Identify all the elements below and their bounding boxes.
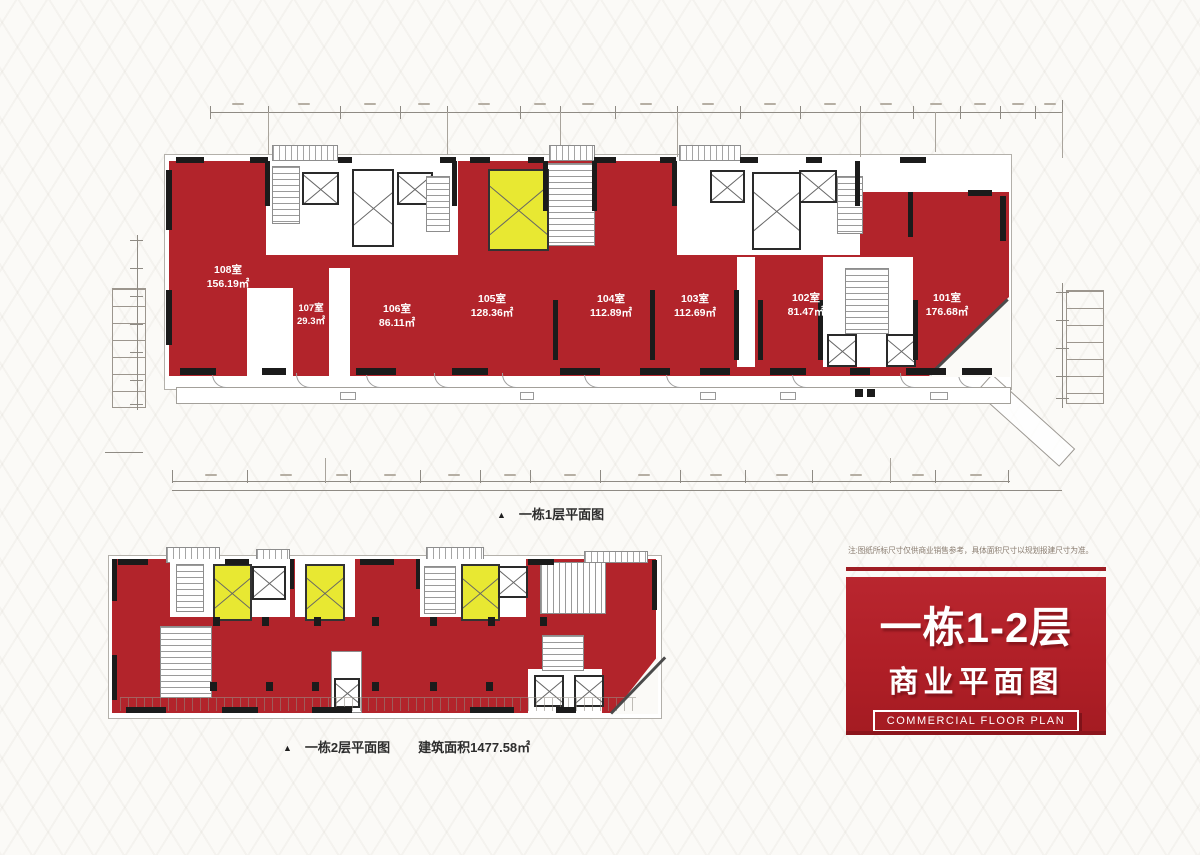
- unit-label-103: 103室112.69㎡: [674, 292, 716, 320]
- dimension-tick: [130, 380, 143, 381]
- wall-segment: [528, 157, 544, 163]
- elevator-xbox: [827, 334, 857, 367]
- wall-segment: [855, 389, 863, 397]
- dimension-extension-line: [677, 112, 678, 158]
- wall-segment: [650, 290, 655, 360]
- dimension-number-mark: [776, 474, 788, 476]
- plan1-left-parking-stalls: [112, 288, 146, 408]
- structural-column: [314, 617, 321, 626]
- dimension-number-mark: [824, 103, 836, 105]
- elevator-xbox: [302, 172, 339, 205]
- dimension-tick: [960, 106, 961, 119]
- dimension-tick: [1056, 348, 1069, 349]
- dimension-number-mark: [364, 103, 376, 105]
- dimension-number-mark: [1012, 103, 1024, 105]
- plan1-bottom-dimension-line-2: [172, 490, 1062, 491]
- dimension-tick: [745, 470, 746, 483]
- unit-label-105: 105室128.36㎡: [471, 292, 514, 320]
- dimension-number-mark: [336, 474, 348, 476]
- dimension-extension-line: [935, 112, 936, 152]
- wall-segment: [416, 559, 420, 589]
- wall-segment: [734, 290, 739, 360]
- plan1-left-dimension-line: [137, 235, 138, 410]
- wall-segment: [180, 368, 216, 375]
- plan1-right-parking-stalls: [1066, 290, 1104, 404]
- banner-caption-en: COMMERCIAL FLOOR PLAN: [873, 710, 1079, 732]
- structural-column: [430, 617, 437, 626]
- canopy-mark: [780, 392, 796, 400]
- dimension-number-mark: [850, 474, 862, 476]
- dimension-tick: [130, 240, 143, 241]
- elevator-xbox: [252, 566, 286, 600]
- dimension-tick: [935, 470, 936, 483]
- title-banner: 一栋1-2层 商业平面图 COMMERCIAL FLOOR PLAN: [846, 577, 1106, 735]
- roof-stair-bump: [549, 145, 595, 161]
- structural-column: [486, 682, 493, 691]
- plan1-caption: ▲一栋1层平面图: [497, 504, 604, 523]
- wall-segment: [470, 157, 490, 163]
- dimension-number-mark: [710, 474, 722, 476]
- wall-segment: [112, 559, 117, 601]
- wall-segment: [112, 655, 117, 700]
- dimension-number-mark: [298, 103, 310, 105]
- wall-segment: [452, 161, 457, 206]
- wall-segment: [908, 192, 913, 237]
- dimension-tick: [1056, 292, 1069, 293]
- dimension-tick: [680, 470, 681, 483]
- wall-segment: [1000, 196, 1006, 241]
- dimension-extension-line: [325, 458, 326, 482]
- wall-segment: [265, 161, 270, 206]
- canopy-mark: [520, 392, 534, 400]
- dimension-tick: [530, 470, 531, 483]
- roof-stair-bump: [679, 145, 741, 161]
- highlight-shaft-plan2: [305, 564, 345, 621]
- dimension-tick: [420, 470, 421, 483]
- dimension-number-mark: [974, 103, 986, 105]
- dimension-number-mark: [478, 103, 490, 105]
- unit-label-101: 101室176.68㎡: [926, 291, 969, 319]
- dimension-tick: [350, 470, 351, 483]
- triangle-marker-icon: ▲: [497, 510, 506, 520]
- elevator-xbox: [799, 170, 837, 203]
- wall-segment: [338, 157, 352, 163]
- unit-label-104: 104室112.89㎡: [590, 292, 632, 320]
- structural-column: [372, 682, 379, 691]
- corridor-103-102: [737, 257, 755, 367]
- wall-segment: [906, 368, 946, 375]
- dimension-number-mark: [638, 474, 650, 476]
- wall-segment: [126, 707, 166, 713]
- wall-segment: [290, 559, 294, 589]
- wall-segment: [560, 368, 600, 375]
- corridor-beside-107: [329, 268, 350, 376]
- dimension-extension-line: [860, 112, 861, 158]
- wall-segment: [543, 161, 548, 211]
- plan1-bottom-dimension-line: [172, 481, 1010, 482]
- wall-segment: [176, 157, 204, 163]
- stair-core: [426, 176, 450, 232]
- dimension-tick: [130, 324, 143, 325]
- dimension-tick: [130, 404, 143, 405]
- wall-segment: [700, 368, 730, 375]
- wall-segment: [262, 368, 286, 375]
- elevator-xbox: [886, 334, 916, 367]
- dimension-number-mark: [448, 474, 460, 476]
- wall-segment: [166, 170, 172, 230]
- wall-segment: [758, 300, 763, 360]
- wall-segment: [225, 559, 249, 565]
- dimension-tick: [913, 106, 914, 119]
- dimension-tick: [615, 106, 616, 119]
- dimension-extension-line: [890, 458, 891, 482]
- dimension-tick: [1056, 398, 1069, 399]
- strip-above-101: [860, 157, 1010, 192]
- structural-column: [430, 682, 437, 691]
- wall-segment: [118, 559, 148, 565]
- dimension-tick: [600, 470, 601, 483]
- wall-segment: [913, 300, 918, 360]
- dimension-tick: [812, 470, 813, 483]
- stair-core: [540, 562, 606, 614]
- wall-segment: [556, 707, 576, 713]
- unit-label-102: 102室81.47㎡: [788, 291, 825, 319]
- wall-segment: [770, 368, 806, 375]
- dimension-tick: [740, 106, 741, 119]
- banner-subtitle: 商业平面图: [846, 657, 1106, 701]
- plan2-caption: ▲一栋2层平面图建筑面积1477.58㎡: [283, 737, 530, 756]
- plan1-left-stray-mark: [105, 452, 143, 453]
- roof-stair-bump: [272, 145, 338, 161]
- stair-core: [272, 166, 300, 224]
- dimension-extension-line: [447, 112, 448, 155]
- stair-core: [845, 268, 889, 334]
- dimension-number-mark: [232, 103, 244, 105]
- plan2-caption-text: 一栋2层平面图: [305, 740, 390, 755]
- dimension-tick: [1035, 106, 1036, 119]
- structural-column: [210, 682, 217, 691]
- dimension-tick: [1000, 106, 1001, 119]
- canopy-mark: [340, 392, 356, 400]
- elevator-xbox: [710, 170, 745, 203]
- dimension-tick: [172, 470, 173, 483]
- highlight-shaft-plan2: [213, 564, 252, 621]
- wall-segment: [640, 368, 670, 375]
- dimension-tick: [1056, 376, 1069, 377]
- dimension-tick: [130, 268, 143, 269]
- plan1-canopy-strip: [176, 387, 1011, 404]
- structural-column: [540, 617, 547, 626]
- wall-segment: [528, 559, 554, 565]
- dimension-number-mark: [930, 103, 942, 105]
- banner-title: 一栋1-2层: [846, 594, 1106, 655]
- wall-segment: [360, 559, 394, 565]
- plan2-area-note: 建筑面积1477.58㎡: [418, 740, 530, 755]
- dimension-number-mark: [970, 474, 982, 476]
- dimension-number-mark: [504, 474, 516, 476]
- elevator-xbox: [752, 172, 801, 250]
- wall-segment: [594, 157, 616, 163]
- dimension-tick: [130, 296, 143, 297]
- dimension-number-mark: [582, 103, 594, 105]
- dimension-tick: [247, 470, 248, 483]
- dimension-extension-line: [268, 112, 269, 155]
- elevator-xbox: [498, 566, 528, 598]
- dimension-tick: [130, 352, 143, 353]
- unit108-inner-room: [247, 288, 293, 376]
- wall-segment: [740, 157, 758, 163]
- dimension-number-mark: [384, 474, 396, 476]
- dimension-tick: [520, 106, 521, 119]
- wall-segment: [867, 389, 875, 397]
- plan1-caption-text: 一栋1层平面图: [519, 507, 604, 522]
- elevator-xbox: [352, 169, 394, 247]
- wall-segment: [855, 161, 860, 206]
- wall-segment: [900, 157, 926, 163]
- dimension-number-mark: [880, 103, 892, 105]
- dimension-number-mark: [418, 103, 430, 105]
- wall-segment: [553, 300, 558, 360]
- dimension-number-mark: [912, 474, 924, 476]
- dimension-tick: [340, 106, 341, 119]
- dimension-tick: [1056, 320, 1069, 321]
- plan1-right-dimension-line: [1062, 283, 1063, 408]
- dimension-number-mark: [1044, 103, 1056, 105]
- dimension-number-mark: [534, 103, 546, 105]
- wall-segment: [166, 290, 172, 345]
- dimension-tick: [480, 470, 481, 483]
- wall-segment: [356, 368, 396, 375]
- wall-segment: [672, 161, 677, 206]
- wall-segment: [222, 707, 258, 713]
- wall-segment: [592, 161, 597, 211]
- divider-rule: [846, 567, 1106, 571]
- dimension-number-mark: [640, 103, 652, 105]
- stair-core: [424, 566, 456, 614]
- triangle-marker-icon: ▲: [283, 743, 292, 753]
- structural-column: [312, 682, 319, 691]
- unit-label-106: 106室86.11㎡: [379, 302, 415, 330]
- wall-segment: [652, 560, 657, 610]
- dimension-number-mark: [280, 474, 292, 476]
- wall-segment: [806, 157, 822, 163]
- highlight-shaft-plan1: [488, 169, 549, 251]
- canopy-mark: [700, 392, 716, 400]
- dimension-tick: [210, 106, 211, 119]
- dimension-tick: [800, 106, 801, 119]
- stairwell-bottom-left: [160, 626, 212, 698]
- commercial-floor-plan-sheet: 108室156.19㎡ 107室29.3㎡ 106室86.11㎡ 105室128…: [0, 0, 1200, 855]
- mid-stairwell: [547, 163, 595, 246]
- wall-segment: [968, 190, 992, 196]
- stair-core: [542, 635, 584, 671]
- dimension-extension-line: [1062, 112, 1063, 158]
- dimension-tick: [1008, 470, 1009, 483]
- structural-column: [488, 617, 495, 626]
- unit-label-108: 108室156.19㎡: [207, 263, 250, 291]
- wall-segment: [452, 368, 488, 375]
- wall-segment: [470, 707, 514, 713]
- dimension-number-mark: [764, 103, 776, 105]
- canopy-mark: [930, 392, 948, 400]
- structural-column: [213, 617, 220, 626]
- stair-core: [176, 564, 204, 612]
- dimension-number-mark: [205, 474, 217, 476]
- unit-label-107: 107室29.3㎡: [297, 303, 325, 329]
- dimension-tick: [400, 106, 401, 119]
- structural-column: [262, 617, 269, 626]
- wall-segment: [962, 368, 992, 375]
- structural-column: [266, 682, 273, 691]
- structural-column: [372, 617, 379, 626]
- wall-segment: [850, 368, 870, 375]
- disclaimer-note: 注:图纸所标尺寸仅供商业销售参考，具体面积尺寸以规划报建尺寸为准。: [848, 545, 1110, 556]
- dimension-number-mark: [702, 103, 714, 105]
- dimension-number-mark: [564, 474, 576, 476]
- highlight-shaft-plan2: [461, 564, 500, 621]
- wall-segment: [312, 707, 352, 713]
